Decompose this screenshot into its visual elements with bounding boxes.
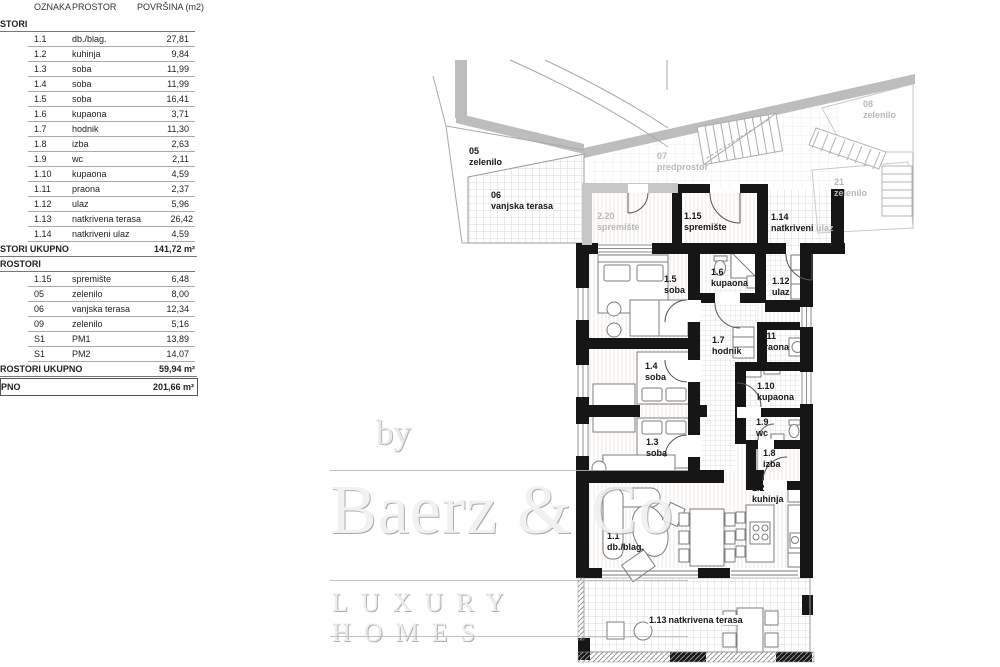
room-code: 1.8 [763, 448, 781, 459]
room-code: 21 [834, 177, 867, 188]
room-code: 1.6 [711, 267, 748, 278]
room-name: soba [646, 448, 667, 458]
room-name: db./blag. [607, 542, 644, 552]
room-name: izba [763, 459, 781, 469]
room-code: 2.20 [597, 211, 640, 222]
room-code: 1.14 [771, 212, 834, 223]
room-name: ulaz [772, 287, 790, 297]
room-name: predprostor [657, 162, 708, 172]
room-code: 1.4 [645, 361, 666, 372]
room-code: 1.1 [607, 531, 644, 542]
room-name: kupaona [711, 278, 748, 288]
room-name: natkriveni [771, 223, 814, 233]
room-name: praona [759, 342, 789, 352]
room-code: 1.3 [646, 437, 667, 448]
room-name: wc [756, 428, 768, 438]
floorplan-page: OZNAKA PROSTOR POVRŠINA (m2) STORI1.1db.… [0, 0, 1000, 667]
room-name: spremište [597, 222, 640, 232]
room-code: 1.2 [752, 483, 784, 494]
room-label-1.4: 1.4soba [645, 361, 666, 383]
room-label-08: 08zelenilo [863, 99, 896, 121]
room-name: natkrivena terasa [668, 615, 744, 625]
room-label-1.9: 1.9wc [756, 417, 769, 439]
room-name: spremište [684, 222, 727, 232]
room-code: 1.12 [772, 276, 790, 287]
room-label-1.2: 1.2kuhinja [752, 483, 784, 505]
room-code: 1.5 [664, 274, 685, 285]
room-label-07: 07predprostor [657, 151, 708, 173]
room-label-05: 05zelenilo [469, 146, 502, 168]
room-label-2.20: 2.20spremište [597, 211, 640, 233]
room-label-1.12: 1.12ulaz [772, 276, 790, 298]
room-label-1.15: 1.15spremište [684, 211, 727, 233]
room-code: 06 [491, 190, 553, 201]
room-label-1.7: 1.7hodnik [712, 335, 742, 357]
floor-plan: 05zelenilo06vanjska terasa07predprostor2… [0, 0, 1000, 667]
room-name: zelenilo [834, 188, 867, 198]
room-name: kuhinja [752, 494, 784, 504]
room-label-1.5: 1.5soba [664, 274, 685, 296]
room-name: soba [664, 285, 685, 295]
room-label-1.13: 1.13natkrivena terasa [648, 615, 744, 626]
room-label-1.6: 1.6kupaona [711, 267, 748, 289]
room-label-21: 21zelenilo [834, 177, 867, 199]
room-name: kupaona [757, 392, 794, 402]
room-code: 1.7 [712, 335, 742, 346]
room-code: 1.13 [648, 615, 668, 626]
room-name-secondary: ulaz [814, 223, 834, 233]
room-code: 07 [657, 151, 708, 162]
room-code: 05 [469, 146, 502, 157]
room-code: 1.10 [757, 381, 794, 392]
room-code: 08 [863, 99, 896, 110]
room-label-1.11: 1.11praona [759, 331, 789, 353]
room-name: hodnik [712, 346, 742, 356]
room-name: vanjska terasa [491, 201, 553, 211]
room-name: soba [645, 372, 666, 382]
room-name: zelenilo [469, 157, 502, 167]
room-label-1.3: 1.3soba [646, 437, 667, 459]
room-label-1.8: 1.8izba [763, 448, 781, 470]
room-label-1.1: 1.1db./blag. [607, 531, 644, 553]
room-name: zelenilo [863, 110, 896, 120]
room-code: 1.9 [756, 417, 769, 428]
room-code: 1.11 [759, 331, 789, 342]
room-label-1.14: 1.14natkriveni ulaz [771, 212, 834, 234]
room-code: 1.15 [684, 211, 727, 222]
room-label-06: 06vanjska terasa [491, 190, 553, 212]
room-label-1.10: 1.10kupaona [757, 381, 794, 403]
floorplan-drawing [0, 0, 1000, 667]
